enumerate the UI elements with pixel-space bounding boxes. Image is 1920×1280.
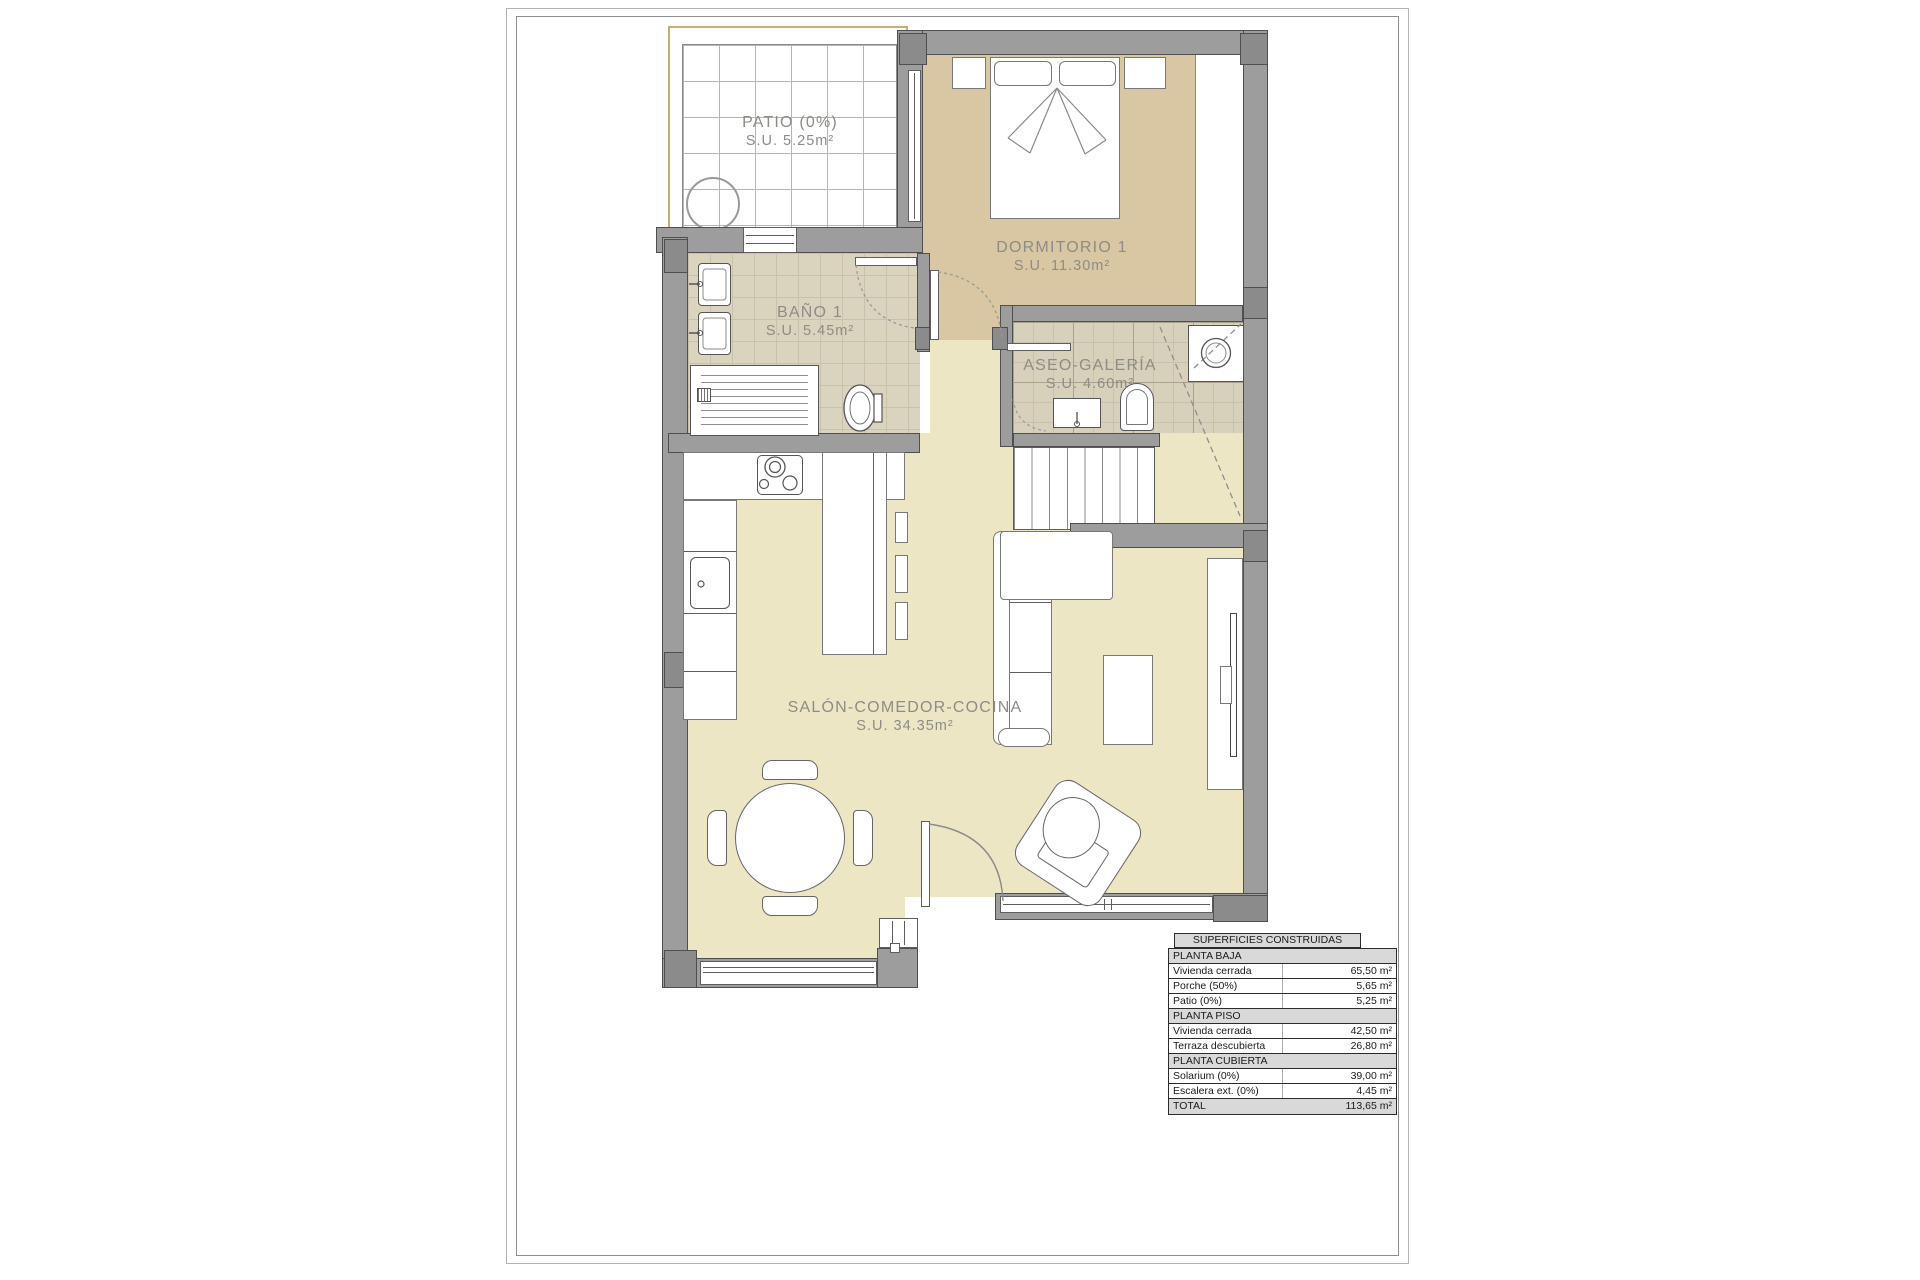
sink-symbol <box>698 263 731 306</box>
chair-symbol <box>762 896 818 916</box>
floor-plan-sheet: PATIO (0%) S.U. 5.25m² DORMITORIO 1 S.U.… <box>0 0 1920 1280</box>
wall-pillar <box>1243 530 1268 562</box>
table-row: Porche (50%)5,65 m² <box>1169 979 1396 994</box>
room-name: DORMITORIO 1 <box>996 238 1127 257</box>
coffee-table-symbol <box>1103 655 1153 745</box>
nightstand-symbol <box>1124 57 1166 89</box>
stove-symbol <box>757 455 803 495</box>
door-jamb <box>992 327 1008 350</box>
wall-pillar <box>1240 33 1268 65</box>
room-label-bano: BAÑO 1 S.U. 5.45m² <box>766 303 854 341</box>
wall-segment <box>897 30 1268 55</box>
sink-symbol <box>1053 398 1101 428</box>
room-name: SALÓN-COMEDOR-COCINA <box>788 698 1023 717</box>
kitchen-sink-symbol <box>690 557 730 609</box>
table-row: PLANTA CUBIERTA <box>1169 1054 1396 1069</box>
sofa-chaise-symbol <box>1000 531 1113 600</box>
wall-segment <box>877 948 918 988</box>
wall-pillar <box>1213 895 1268 922</box>
door-leaf <box>921 821 930 907</box>
table-row: Patio (0%)5,25 m² <box>1169 994 1396 1009</box>
wall-segment <box>1013 433 1160 447</box>
staircase <box>1013 447 1155 530</box>
washing-machine-symbol <box>1188 325 1244 382</box>
door-leaf <box>930 270 939 340</box>
room-label-aseo: ASEO-GALERÍA S.U. 4.60m² <box>1023 356 1157 394</box>
window-symbol <box>1000 896 1213 913</box>
chair-symbol <box>853 810 873 866</box>
pillow-symbol <box>994 61 1052 86</box>
chair-symbol <box>707 810 727 866</box>
floor-plan: PATIO (0%) S.U. 5.25m² DORMITORIO 1 S.U.… <box>0 0 1920 1280</box>
table-row: Terraza descubierta (0%)26,80 m² <box>1169 1039 1396 1054</box>
sink-symbol <box>698 312 731 355</box>
wall-pillar <box>664 950 697 988</box>
room-label-dormitorio: DORMITORIO 1 S.U. 11.30m² <box>996 238 1127 276</box>
door-leaf <box>855 257 917 266</box>
shower-tray-symbol <box>690 365 819 436</box>
wall-pillar <box>664 239 688 273</box>
shelf-symbol <box>1007 343 1071 351</box>
wall-segment <box>668 433 920 453</box>
kitchen-island <box>822 452 887 655</box>
wall-pillar <box>1243 287 1268 319</box>
bedroom-wardrobe <box>1195 55 1243 307</box>
table-row: PLANTA BAJA <box>1169 949 1396 964</box>
nightstand-symbol <box>952 57 986 89</box>
room-label-patio: PATIO (0%) S.U. 5.25m² <box>742 113 838 151</box>
dining-table-symbol <box>735 783 845 893</box>
room-name: PATIO (0%) <box>742 113 838 132</box>
table-row: Escalera ext. (0%)4,45 m² <box>1169 1084 1396 1099</box>
wall-segment <box>1243 30 1268 922</box>
table-row: Vivienda cerrada65,50 m² <box>1169 964 1396 979</box>
table-row: Vivienda cerrada42,50 m² <box>1169 1024 1396 1039</box>
shelf-symbol <box>895 555 908 593</box>
table-row-total: TOTAL113,65 m² <box>1169 1099 1396 1114</box>
areas-table-rows: PLANTA BAJA Vivienda cerrada65,50 m² Por… <box>1168 948 1397 1115</box>
wall-segment <box>1002 305 1243 322</box>
areas-table: SUPERFICIES CONSTRUIDAS TOTALES PLANTA B… <box>1168 933 1397 1113</box>
kitchen-counter <box>683 500 737 720</box>
room-area: S.U. 11.30m² <box>996 257 1127 276</box>
room-area: S.U. 5.45m² <box>766 322 854 341</box>
room-area: S.U. 5.25m² <box>742 132 838 151</box>
shelf-symbol <box>1220 666 1232 704</box>
chair-symbol <box>762 760 818 780</box>
door-jamb <box>915 327 930 350</box>
patio-circle-symbol <box>686 177 740 231</box>
wall-pillar <box>899 33 927 65</box>
hallway-floor <box>930 340 1002 440</box>
areas-table-title: SUPERFICIES CONSTRUIDAS TOTALES <box>1174 933 1361 948</box>
pillow-symbol <box>1059 61 1116 86</box>
table-row: Solarium (0%)39,00 m² <box>1169 1069 1396 1084</box>
room-name: ASEO-GALERÍA <box>1023 356 1157 375</box>
window-symbol <box>700 961 877 985</box>
door-threshold <box>743 227 797 253</box>
shelf-symbol <box>895 512 908 543</box>
room-name: BAÑO 1 <box>766 303 854 322</box>
room-area: S.U. 34.35m² <box>788 717 1023 736</box>
room-area: S.U. 4.60m² <box>1023 375 1157 394</box>
room-label-salon: SALÓN-COMEDOR-COCINA S.U. 34.35m² <box>788 698 1023 736</box>
shelf-symbol <box>895 602 908 640</box>
door-stop <box>890 943 900 953</box>
window-symbol <box>908 70 921 222</box>
table-row: PLANTA PISO <box>1169 1009 1396 1024</box>
